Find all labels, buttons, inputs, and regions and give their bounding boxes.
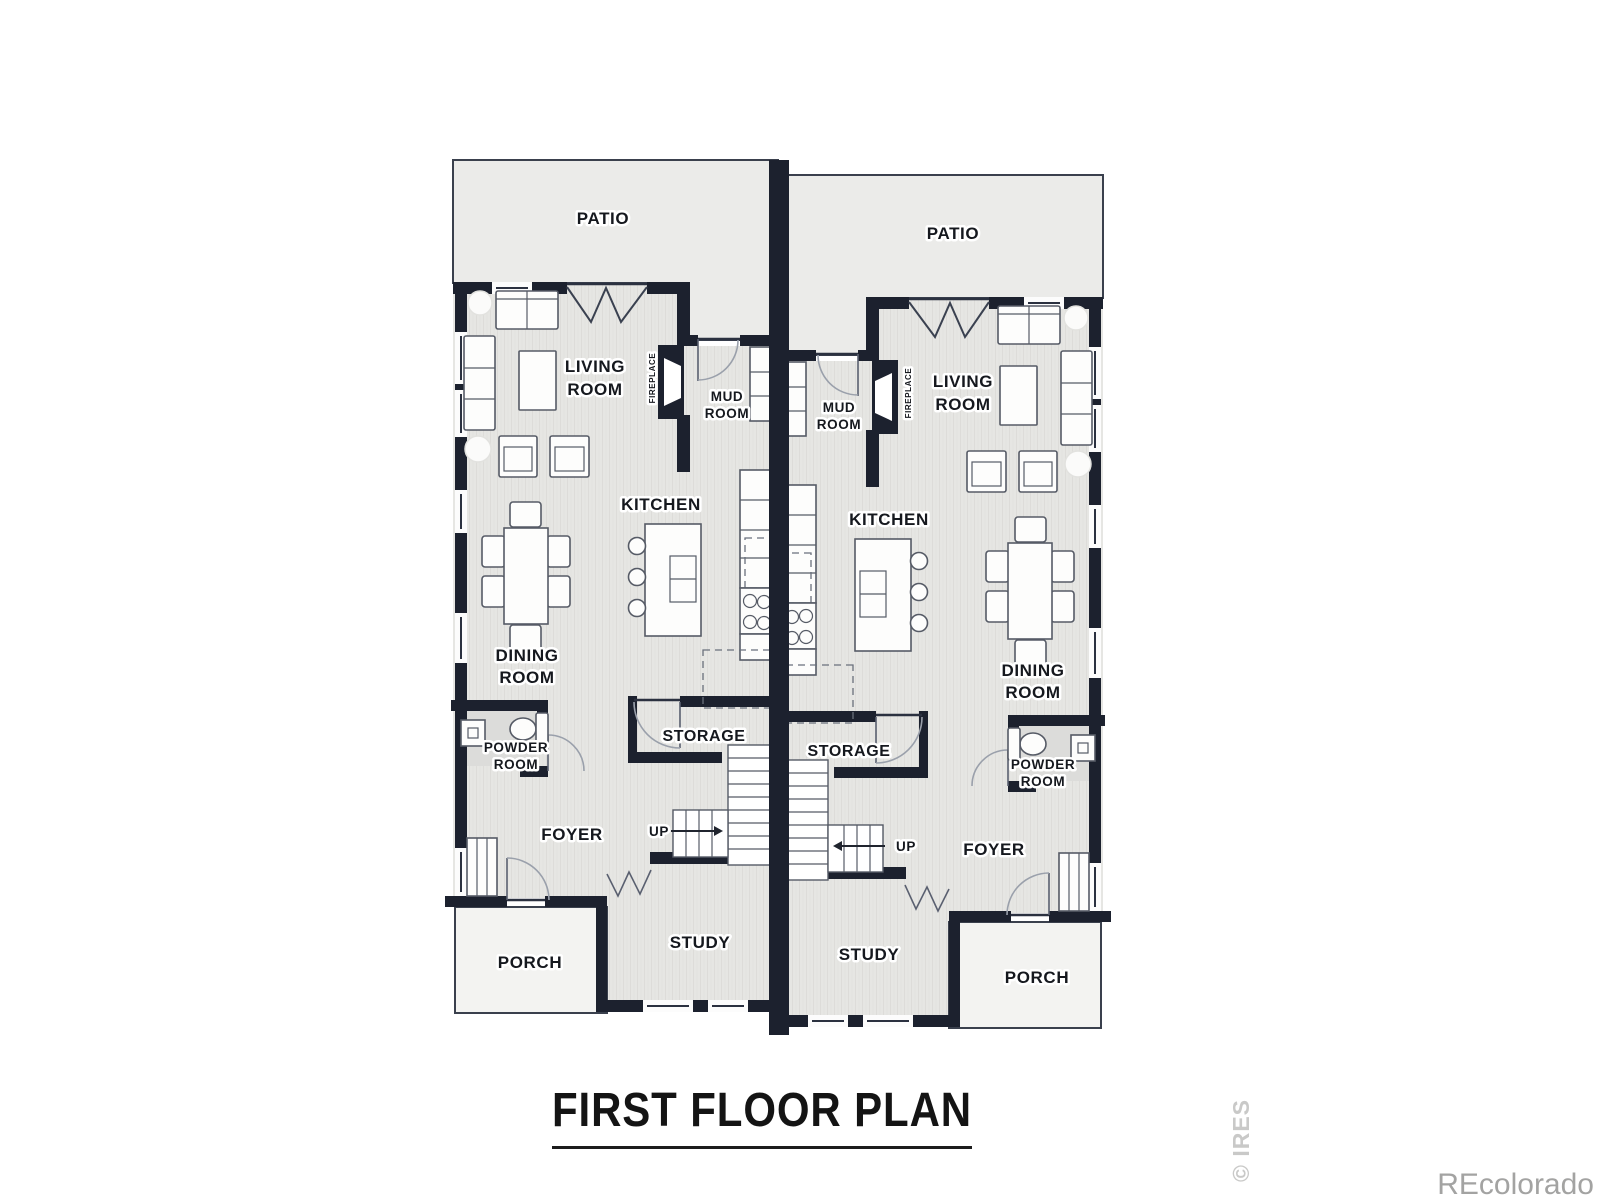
party-wall: [769, 160, 789, 1035]
room-label-mud-right-line2: ROOM: [817, 417, 861, 432]
room-label-storage-left: STORAGE: [662, 728, 745, 745]
room-label-patio-left: PATIO: [577, 209, 629, 228]
room-label-dining-left-line1: DINING: [495, 646, 558, 665]
room-label-mud-left-line1: MUD: [711, 389, 744, 404]
room-label-up-left: UP: [649, 824, 669, 839]
room-label-living-left-line2: ROOM: [567, 380, 622, 399]
room-label-dining-right-line1: DINING: [1001, 661, 1064, 680]
room-label-study-left: STUDY: [670, 933, 731, 952]
room-label-living-right-line1: LIVING: [933, 372, 993, 391]
room-label-fireplace-left: FIREPLACE: [648, 353, 657, 404]
title-underline: [552, 1146, 972, 1149]
recolorado-watermark: REcolorado: [1437, 1168, 1594, 1200]
room-label-foyer-left: FOYER: [541, 825, 603, 844]
room-label-mud-right-line1: MUD: [823, 400, 856, 415]
ires-watermark: © IRES: [1228, 1099, 1254, 1182]
plan-title-group: FIRST FLOOR PLAN: [552, 1084, 972, 1149]
room-label-powder-left-line1: POWDER: [484, 740, 548, 755]
room-label-porch-right: PORCH: [1005, 968, 1069, 987]
floor-plan-page: PATIO LIVING ROOM FIREPLACE MUD ROOM KIT…: [0, 0, 1600, 1200]
room-label-storage-right: STORAGE: [807, 743, 890, 760]
room-label-powder-left-line2: ROOM: [494, 757, 538, 772]
room-label-fireplace-right: FIREPLACE: [904, 368, 913, 419]
room-label-dining-left-line2: ROOM: [499, 668, 554, 687]
room-label-living-right-line2: ROOM: [935, 395, 990, 414]
room-label-powder-right-line1: POWDER: [1011, 757, 1075, 772]
room-label-kitchen-right: KITCHEN: [849, 510, 929, 529]
unit-left-geometry: [445, 160, 778, 1013]
unit-right-geometry: [778, 175, 1111, 1028]
room-label-dining-right-line2: ROOM: [1005, 683, 1060, 702]
room-label-living-left-line1: LIVING: [565, 357, 625, 376]
plan-title: FIRST FLOOR PLAN: [552, 1084, 972, 1137]
room-label-patio-right: PATIO: [927, 224, 979, 243]
room-label-kitchen-left: KITCHEN: [621, 495, 701, 514]
floor-plan-drawing: PATIO LIVING ROOM FIREPLACE MUD ROOM KIT…: [0, 0, 1600, 1200]
room-label-mud-left-line2: ROOM: [705, 406, 749, 421]
room-label-porch-left: PORCH: [498, 953, 562, 972]
room-label-foyer-right: FOYER: [963, 840, 1025, 859]
room-label-powder-right-line2: ROOM: [1021, 774, 1065, 789]
room-label-up-right: UP: [896, 839, 916, 854]
room-label-study-right: STUDY: [839, 945, 900, 964]
